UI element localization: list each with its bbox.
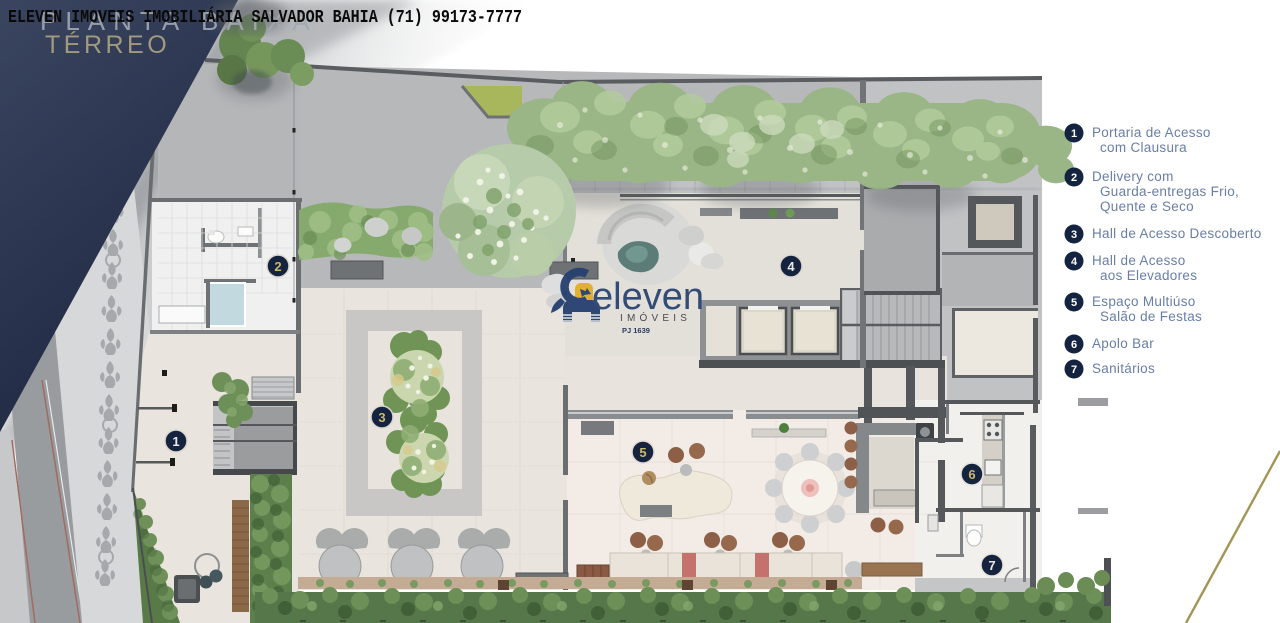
svg-text:aos Elevadores: aos Elevadores	[1100, 268, 1197, 283]
svg-text:PJ 1639: PJ 1639	[622, 326, 650, 335]
svg-text:2: 2	[1071, 172, 1077, 184]
svg-text:5: 5	[639, 445, 646, 460]
svg-text:Hall de Acesso Descoberto: Hall de Acesso Descoberto	[1092, 226, 1262, 241]
svg-text:2: 2	[274, 259, 281, 274]
svg-text:6: 6	[968, 467, 975, 482]
svg-text:Espaço Multiúso: Espaço Multiúso	[1092, 294, 1196, 309]
svg-text:4: 4	[1071, 256, 1078, 268]
svg-text:IMÓVEIS: IMÓVEIS	[620, 311, 691, 324]
svg-text:Delivery com: Delivery com	[1092, 169, 1174, 184]
svg-text:1: 1	[172, 434, 179, 449]
svg-text:eleven: eleven	[592, 276, 704, 318]
svg-text:Salão de Festas: Salão de Festas	[1100, 309, 1202, 324]
svg-text:Portaria de Acesso: Portaria de Acesso	[1092, 125, 1211, 140]
svg-text:7: 7	[1071, 364, 1077, 376]
svg-text:6: 6	[1071, 339, 1077, 351]
svg-text:com Clausura: com Clausura	[1100, 140, 1187, 155]
svg-text:3: 3	[378, 410, 385, 425]
svg-text:Hall de Acesso: Hall de Acesso	[1092, 253, 1186, 268]
svg-text:5: 5	[1071, 297, 1077, 309]
svg-text:Apolo Bar: Apolo Bar	[1092, 336, 1154, 351]
svg-text:1: 1	[1071, 128, 1077, 140]
svg-text:4: 4	[787, 259, 795, 274]
svg-text:Guarda-entregas Frio,: Guarda-entregas Frio,	[1100, 184, 1239, 199]
svg-text:TÉRREO: TÉRREO	[45, 30, 170, 59]
svg-text:Sanitários: Sanitários	[1092, 361, 1155, 376]
svg-text:3: 3	[1071, 229, 1077, 241]
svg-text:Quente e Seco: Quente e Seco	[1100, 199, 1194, 214]
svg-text:ELEVEN IMOVEIS IMOBILIÁRIA SAL: ELEVEN IMOVEIS IMOBILIÁRIA SALVADOR BAHI…	[8, 6, 522, 28]
svg-text:7: 7	[988, 558, 995, 573]
